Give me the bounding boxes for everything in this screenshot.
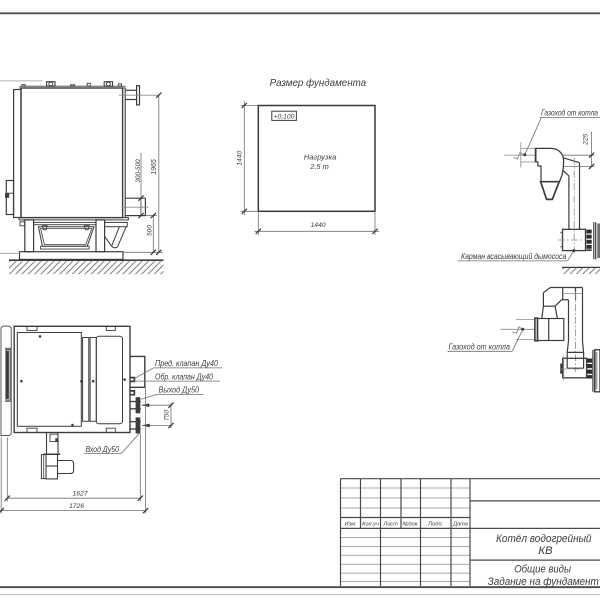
svg-text:300-500: 300-500: [135, 159, 142, 183]
svg-text:Выход Ду50: Выход Ду50: [159, 386, 200, 395]
svg-text:1726: 1726: [69, 503, 84, 510]
svg-text:Пред. клапан Ду40: Пред. клапан Ду40: [155, 359, 218, 368]
svg-text:Газоход от котла: Газоход от котла: [541, 108, 598, 117]
svg-text:1440: 1440: [310, 222, 325, 229]
svg-text:500: 500: [146, 225, 153, 236]
svg-text:Подп.: Подп.: [428, 522, 443, 528]
svg-text:+0,100: +0,100: [274, 114, 295, 121]
svg-text:Размер фундамента: Размер фундамента: [270, 77, 367, 89]
svg-text:Кол.уч: Кол.уч: [362, 522, 379, 528]
svg-text:Изм.: Изм.: [345, 522, 357, 528]
svg-text:Котёл водогрейный: Котёл водогрейный: [496, 533, 592, 545]
svg-text:1440: 1440: [237, 151, 244, 166]
svg-text:№док.: №док.: [402, 522, 418, 528]
svg-text:Вход Ду50: Вход Ду50: [86, 445, 120, 454]
svg-text:Общие виды: Общие виды: [514, 563, 571, 575]
svg-text:Задание на фундамент: Задание на фундамент: [488, 576, 599, 588]
svg-text:1965: 1965: [151, 159, 158, 175]
svg-text:Лист: Лист: [382, 522, 398, 528]
svg-text:2,5 т: 2,5 т: [309, 162, 329, 171]
svg-text:КВ: КВ: [538, 545, 553, 557]
svg-text:Карман всасывающий дымососа: Карман всасывающий дымососа: [461, 252, 567, 261]
svg-text:Обр. клапан Ду40: Обр. клапан Ду40: [155, 373, 213, 382]
svg-text:1627: 1627: [72, 491, 87, 498]
svg-text:Дата: Дата: [452, 522, 468, 528]
svg-text:Газоход от котла: Газоход от котла: [449, 342, 511, 351]
svg-text:Нагрузка: Нагрузка: [304, 153, 337, 162]
svg-text:750: 750: [163, 410, 170, 421]
svg-text:225: 225: [583, 133, 590, 145]
